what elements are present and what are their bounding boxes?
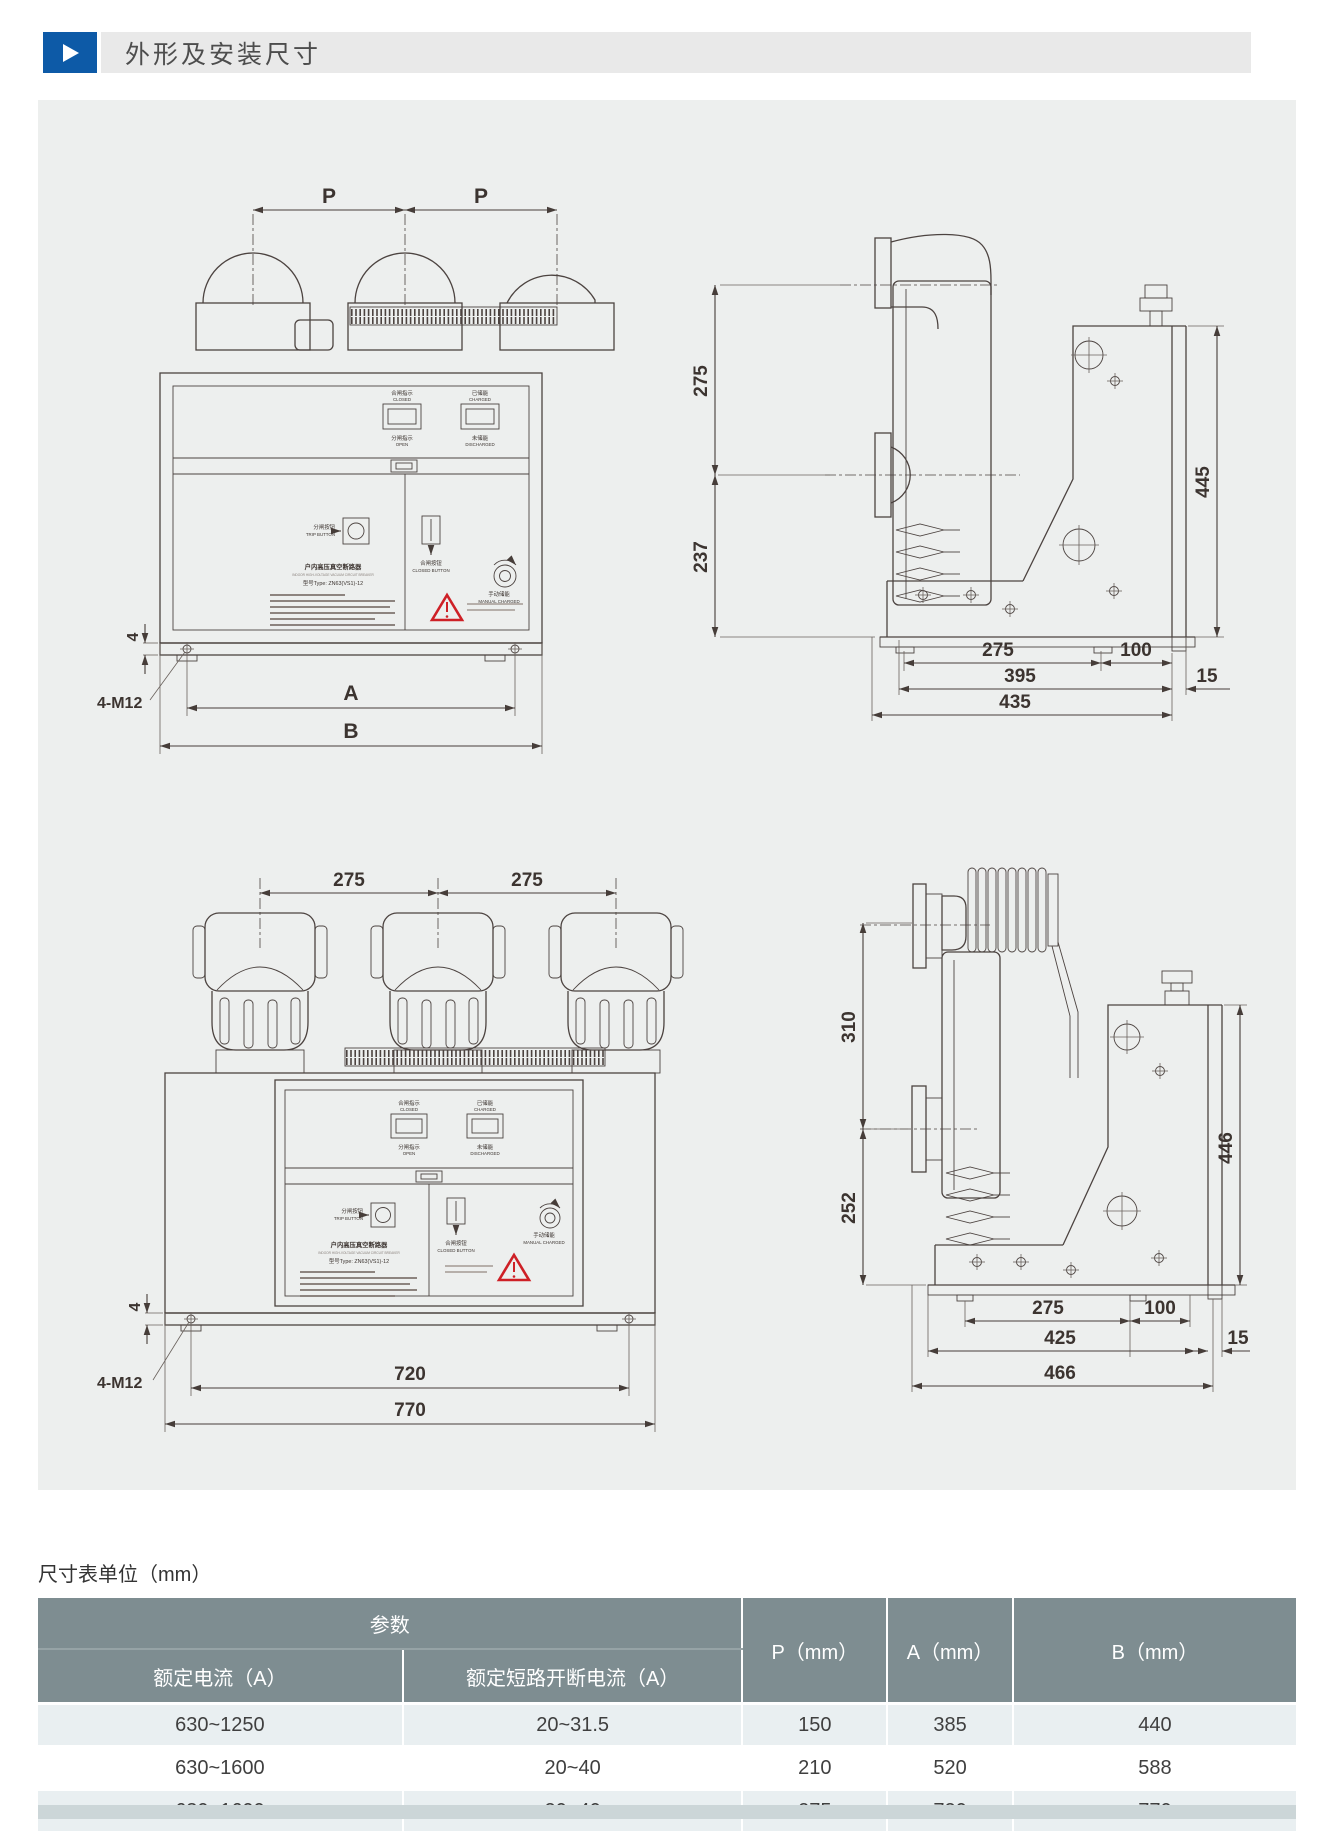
charged-indicator-en: CHARGED xyxy=(469,397,491,402)
manual-charge-knob: 手动储能 MANUAL CHARGED xyxy=(523,1204,564,1245)
embedded-poles xyxy=(193,913,683,1073)
warning-triangle-icon xyxy=(445,1255,529,1280)
nameplate-title: 户内高压真空断路器 xyxy=(331,1240,388,1249)
dim-label-466: 466 xyxy=(1044,1363,1076,1384)
dim-275-top: 275 275 xyxy=(260,870,616,948)
dim-label-b: B xyxy=(343,720,358,743)
dim-label-275-right: 275 xyxy=(511,870,543,891)
close-button-label-cn: 合闸按钮 xyxy=(445,1239,467,1247)
side-dims: 310 252 446 275 100 425 15 466 xyxy=(839,923,1250,1392)
pole-profile xyxy=(860,868,1078,1245)
dim-label-252: 252 xyxy=(839,1192,860,1224)
nameplate-title: 户内高压真空断路器 xyxy=(305,562,362,571)
open-indicator-en: OPEN xyxy=(396,442,408,447)
discharged-indicator-en: DISCHARGED xyxy=(465,442,494,447)
nameplate-subtitle: INDOOR HIGH-VOLTAGE VACUUM CIRCUIT BREAK… xyxy=(292,573,374,577)
mounting-frame xyxy=(928,971,1235,1301)
section-title-bar: 外形及安装尺寸 xyxy=(101,32,1251,73)
catalog-page: { "colors": { "accent_blue": "#0d5aa7", … xyxy=(0,0,1334,1812)
table-cell: 520 xyxy=(887,1747,1013,1790)
close-button-label-en: CLOSED BUTTON xyxy=(412,568,449,573)
trip-button-label-cn: 分闸按钮 xyxy=(313,523,335,531)
side-view-small-drawing: 275 237 445 275 100 395 15 435 xyxy=(690,185,1245,705)
table-group-header: 参数 xyxy=(38,1598,742,1649)
col-header-a: A（mm） xyxy=(887,1598,1013,1704)
side-view-large-drawing: 310 252 446 275 100 425 15 466 xyxy=(730,748,1255,1423)
table-row: 630~1250 20~31.5 150 385 440 xyxy=(38,1704,1296,1747)
nameplate: 户内高压真空断路器 INDOOR HIGH-VOLTAGE VACUUM CIR… xyxy=(270,562,395,625)
table-cell: 20~40 xyxy=(403,1747,743,1790)
closed-indicator-cn: 合闸指示 xyxy=(391,389,413,397)
play-icon xyxy=(43,32,97,73)
manual-charge-label-en: MANUAL CHARGED xyxy=(478,599,519,604)
nameplate-model: 型号Type: ZN63(VS1)-12 xyxy=(303,579,363,587)
breaker-body: 合闸指示 CLOSED 已储能 CHARGED 分闸指示 OPEN 未储能 DI… xyxy=(160,373,542,643)
dim-label-445: 445 xyxy=(1193,466,1214,498)
dimension-table: 参数 P（mm） A（mm） B（mm） 额定电流（A） 额定短路开断电流（A）… xyxy=(38,1598,1296,1831)
dim-label-100: 100 xyxy=(1144,1298,1176,1319)
table-cell: 210 xyxy=(742,1747,887,1790)
dim-label-foot: 4 xyxy=(127,1302,144,1311)
dim-label-720: 720 xyxy=(394,1364,426,1385)
dim-label-a: A xyxy=(343,682,358,705)
close-button-label-cn: 合闸按钮 xyxy=(420,559,442,567)
charged-indicator-cn: 已储能 xyxy=(477,1099,494,1107)
front-view-large-drawing: 275 275 合闸指示 CLOSED 已储能 CHARGED 分闸指示 OPE xyxy=(95,748,695,1438)
table-cell: 440 xyxy=(1013,1704,1296,1747)
mounting-frame xyxy=(880,285,1195,653)
trip-button-label-cn: 分闸按钮 xyxy=(341,1207,363,1215)
front-view-small-drawing: P P 合闸指示 CLOSED 已储能 CHARGED 分闸指示 OPEN xyxy=(95,188,595,763)
dim-label-237: 237 xyxy=(691,541,712,573)
dim-label-446: 446 xyxy=(1216,1132,1237,1164)
dim-label-p-right: P xyxy=(474,185,488,208)
base-feet xyxy=(160,642,542,661)
dim-label-770: 770 xyxy=(394,1400,426,1421)
manual-charge-label-en: MANUAL CHARGED xyxy=(523,1240,564,1245)
discharged-indicator-cn: 未储能 xyxy=(477,1143,494,1151)
table-cell: 630~1600 xyxy=(38,1747,403,1790)
open-indicator-cn: 分闸指示 xyxy=(398,1143,420,1151)
nameplate: 户内高压真空断路器 INDOOR HIGH-VOLTAGE VACUUM CIR… xyxy=(300,1240,417,1296)
dim-label-435: 435 xyxy=(999,692,1031,713)
closed-indicator-cn: 合闸指示 xyxy=(398,1099,420,1107)
close-button-label-en: CLOSED BUTTON xyxy=(437,1248,474,1253)
dim-label-100: 100 xyxy=(1120,640,1152,661)
dim-label-275b: 275 xyxy=(1032,1298,1064,1319)
bottom-dims: 4 720 770 4-M12 xyxy=(97,1294,655,1432)
col-header-p: P（mm） xyxy=(742,1598,887,1704)
pole-profile xyxy=(825,234,1020,605)
dim-label-p-left: P xyxy=(322,185,336,208)
dim-label-275v: 275 xyxy=(691,365,712,397)
manual-charge-label-cn: 手动储能 xyxy=(488,590,510,598)
unit-note: 尺寸表单位（mm） xyxy=(38,1558,211,1587)
dim-label-275-left: 275 xyxy=(333,870,365,891)
table-cell: 20~31.5 xyxy=(403,1704,743,1747)
dim-label-foot: 4 xyxy=(125,632,142,641)
table-cell: 150 xyxy=(742,1704,887,1747)
col-header-b: B（mm） xyxy=(1013,1598,1296,1704)
charged-indicator-en: CHARGED xyxy=(474,1107,496,1112)
side-dims: 275 237 445 275 100 395 15 435 xyxy=(691,285,1230,721)
dim-label-425: 425 xyxy=(1044,1328,1076,1349)
trip-button-label-en: TRIP BUTTON xyxy=(306,532,335,537)
table-cell: 385 xyxy=(887,1704,1013,1747)
breaker-body: 合闸指示 CLOSED 已储能 CHARGED 分闸指示 OPEN 未储能 DI… xyxy=(165,1073,655,1313)
dim-label-275b: 275 xyxy=(982,640,1014,661)
discharged-indicator-en: DISCHARGED xyxy=(470,1151,499,1156)
drawing-panel: P P 合闸指示 CLOSED 已储能 CHARGED 分闸指示 OPEN xyxy=(38,100,1296,1490)
dim-label-395: 395 xyxy=(1004,666,1036,687)
anchor-bolt-label: 4-M12 xyxy=(97,1375,142,1392)
manual-charge-label-cn: 手动储能 xyxy=(533,1231,555,1239)
nameplate-subtitle: INDOOR HIGH-VOLTAGE VACUUM CIRCUIT BREAK… xyxy=(318,1251,400,1255)
closed-indicator-en: CLOSED xyxy=(393,397,411,402)
section-header: 外形及安装尺寸 xyxy=(43,32,1251,73)
dim-label-310: 310 xyxy=(839,1011,860,1043)
anchor-bolt-label: 4-M12 xyxy=(97,695,142,712)
table-footer-strip xyxy=(38,1805,1296,1819)
open-indicator-cn: 分闸指示 xyxy=(391,434,413,442)
charged-indicator-cn: 已储能 xyxy=(472,389,489,397)
dim-label-15: 15 xyxy=(1227,1328,1249,1349)
dim-label-15: 15 xyxy=(1196,666,1218,687)
table-row: 630~1600 20~40 210 520 588 xyxy=(38,1747,1296,1790)
dim-p: P P xyxy=(253,185,557,306)
col-header-rated-current: 额定电流（A） xyxy=(38,1649,403,1704)
open-indicator-en: OPEN xyxy=(403,1151,415,1156)
closed-indicator-en: CLOSED xyxy=(400,1107,418,1112)
trip-button-label-en: TRIP BUTTON xyxy=(334,1216,363,1221)
base-feet xyxy=(165,1312,655,1331)
nameplate-model: 型号Type: ZN63(VS1)-12 xyxy=(329,1257,389,1265)
discharged-indicator-cn: 未储能 xyxy=(472,434,489,442)
col-header-breaking-current: 额定短路开断电流（A） xyxy=(403,1649,743,1704)
table-cell: 630~1250 xyxy=(38,1704,403,1747)
page-title: 外形及安装尺寸 xyxy=(101,35,321,71)
manual-charge-knob: 手动储能 MANUAL CHARGED xyxy=(478,560,519,604)
table-cell: 588 xyxy=(1013,1747,1296,1790)
